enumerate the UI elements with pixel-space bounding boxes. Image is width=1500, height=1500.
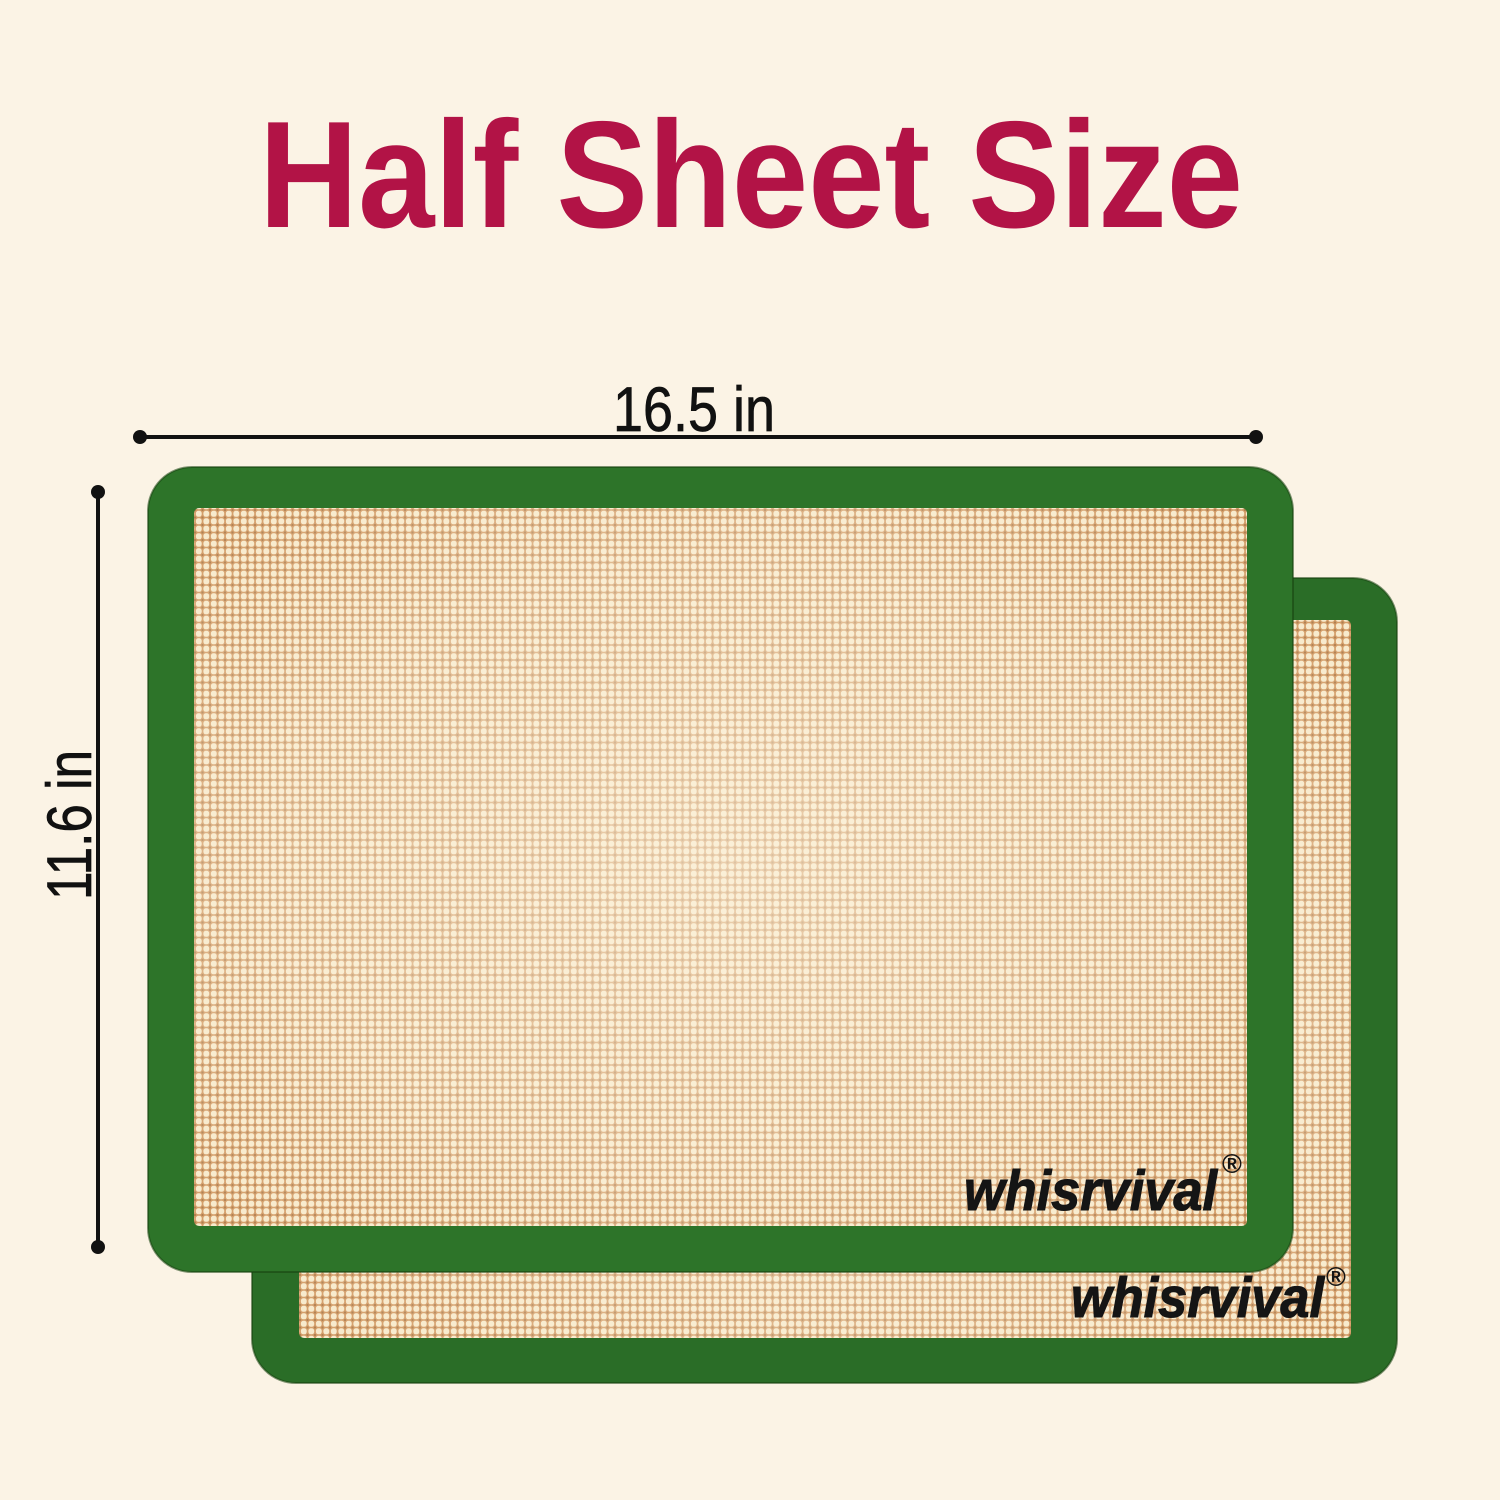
svg-text:®: ®	[1326, 1262, 1346, 1292]
svg-text:11.6 in: 11.6 in	[35, 750, 105, 900]
svg-text:Half Sheet Size: Half Sheet Size	[259, 90, 1243, 260]
svg-text:®: ®	[1222, 1149, 1242, 1179]
svg-text:whisrvival: whisrvival	[1071, 1266, 1325, 1330]
svg-text:16.5 in: 16.5 in	[613, 375, 775, 445]
svg-text:whisrvival: whisrvival	[964, 1159, 1218, 1223]
